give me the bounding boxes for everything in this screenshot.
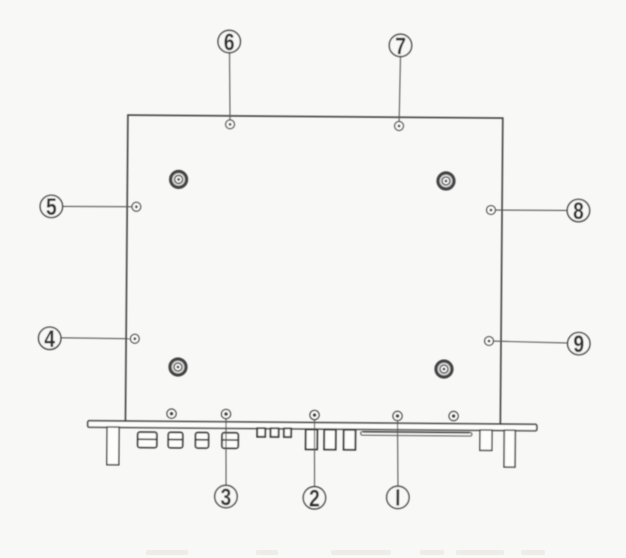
svg-text:3: 3	[220, 484, 231, 511]
svg-text:9: 9	[573, 331, 584, 358]
svg-text:4: 4	[44, 326, 56, 353]
svg-text:7: 7	[395, 33, 406, 60]
svg-text:6: 6	[224, 29, 235, 56]
svg-text:5: 5	[46, 194, 57, 221]
svg-text:2: 2	[309, 485, 320, 512]
svg-text:8: 8	[573, 198, 584, 225]
